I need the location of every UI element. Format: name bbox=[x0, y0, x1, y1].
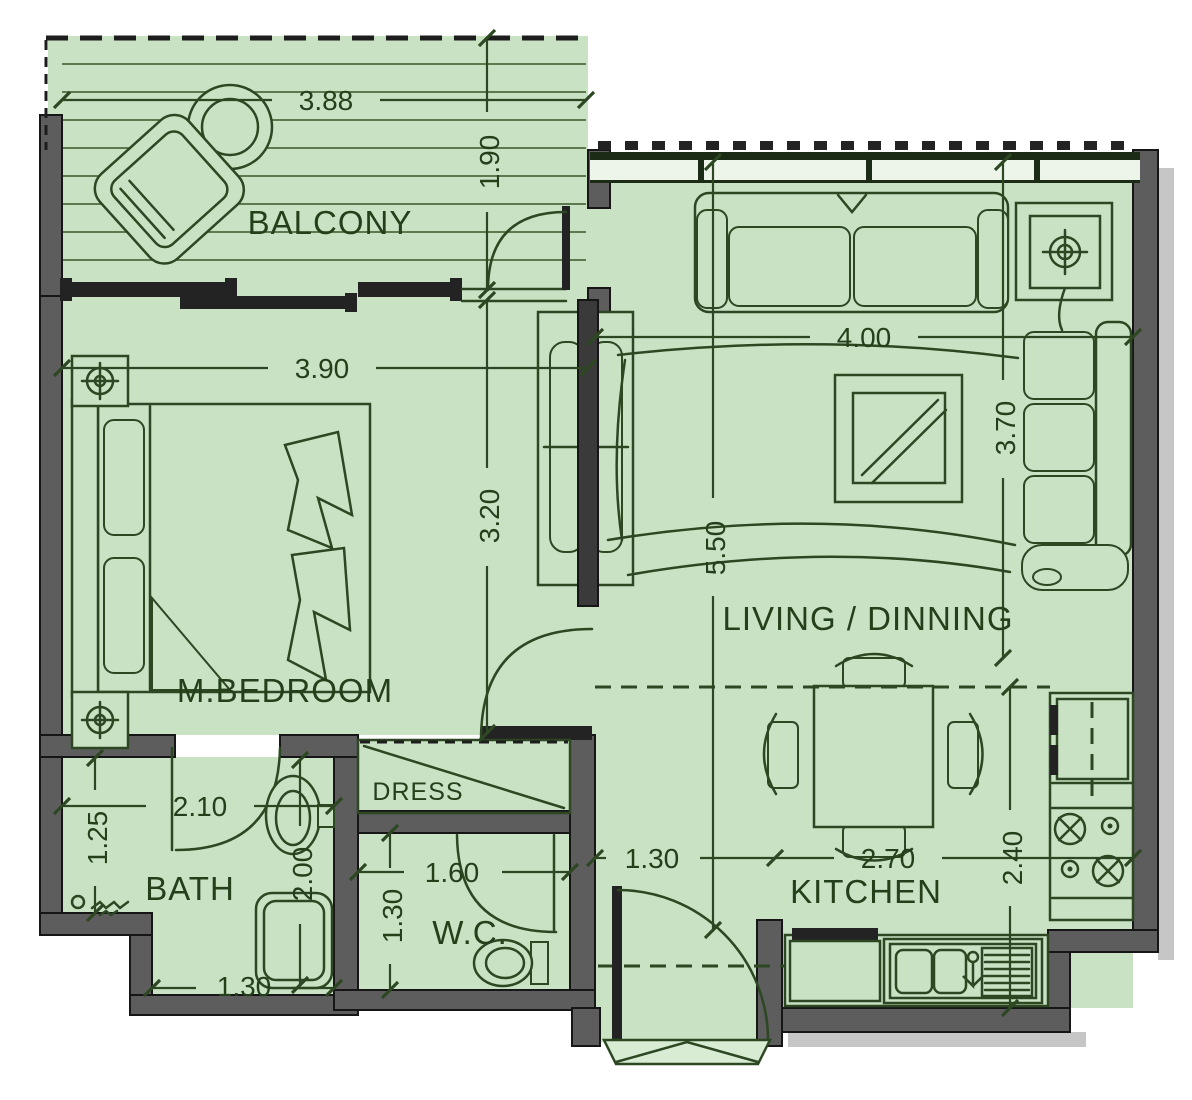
wall-wc-bottom bbox=[334, 990, 595, 1010]
wall-bath-wc-divider bbox=[334, 735, 358, 1008]
dim-label: 1.90 bbox=[474, 135, 505, 190]
room-label-dress: DRESS bbox=[372, 778, 463, 806]
floor-plan-page: 3.88 1.90 3.90 3.20 5.50 bbox=[0, 0, 1192, 1100]
dim-label: 1.25 bbox=[82, 811, 113, 866]
kitchen-counter-right bbox=[1050, 693, 1133, 920]
dining-chair bbox=[764, 714, 798, 794]
dim-label: 1.30 bbox=[217, 971, 272, 1002]
wall-shadow-bottom bbox=[788, 1032, 1086, 1047]
dining-chair bbox=[836, 654, 912, 688]
sofa-icon bbox=[695, 193, 1008, 312]
nightstand-lamp-icon bbox=[72, 692, 128, 748]
living-window-wall bbox=[590, 141, 1140, 183]
double-bed-icon bbox=[72, 400, 370, 696]
room-label-kitchen: KITCHEN bbox=[790, 873, 942, 910]
nightstand-lamp-icon bbox=[72, 356, 128, 406]
dim-label: 3.70 bbox=[990, 401, 1021, 456]
wardrobe-icon bbox=[538, 300, 633, 606]
corner-sofa-icon bbox=[1022, 322, 1131, 590]
counter-edge bbox=[792, 928, 878, 940]
seat-cushion bbox=[729, 227, 850, 306]
dim-label: 3.20 bbox=[474, 489, 505, 544]
window-glass-band bbox=[590, 160, 1140, 180]
wall-bath-bottom-left bbox=[40, 913, 152, 935]
cushion-detail bbox=[1033, 569, 1061, 585]
entry-floor bbox=[600, 1008, 757, 1042]
dim-label: 2.00 bbox=[287, 847, 318, 902]
room-label-living: LIVING / DINNING bbox=[722, 600, 1013, 637]
wall-right bbox=[1133, 150, 1158, 930]
wall-bath-step bbox=[130, 935, 152, 995]
door-leaf bbox=[562, 206, 570, 290]
door-leaf bbox=[481, 726, 592, 740]
dim-label: 2.70 bbox=[861, 843, 916, 874]
seat-cushion bbox=[1024, 476, 1094, 543]
room-label-bath: BATH bbox=[145, 870, 235, 907]
dim-label: 4.00 bbox=[837, 322, 892, 353]
cistern bbox=[531, 942, 548, 984]
pillow bbox=[104, 558, 144, 673]
floor-plan: 3.88 1.90 3.90 3.20 5.50 bbox=[0, 0, 1192, 1100]
door-leaf bbox=[612, 886, 622, 1042]
room-label-bedroom: M.BEDROOM bbox=[177, 672, 393, 709]
pillow bbox=[104, 420, 144, 535]
wall-entry-post-right bbox=[757, 920, 782, 1046]
entry-threshold bbox=[604, 1040, 770, 1064]
table-top bbox=[814, 686, 933, 827]
window-tick-dashes bbox=[598, 141, 1124, 150]
wall-left-main bbox=[40, 296, 62, 913]
wall-entry-post-left bbox=[572, 1008, 600, 1046]
window-outer-line bbox=[590, 152, 1140, 160]
dim-label: 2.10 bbox=[173, 791, 228, 822]
seat-cushion bbox=[1024, 404, 1094, 471]
kitchen-counter-bottom bbox=[785, 928, 1048, 1006]
dining-chair bbox=[948, 714, 983, 794]
dim-label: 3.90 bbox=[295, 353, 350, 384]
room-label-wc: W.C. bbox=[432, 914, 508, 951]
window-mullion bbox=[866, 152, 872, 183]
wall-corridor-left bbox=[570, 735, 595, 1008]
wall-shadow-right bbox=[1158, 168, 1174, 960]
wall-bath-top-right bbox=[280, 735, 358, 757]
seat-cushion bbox=[1024, 332, 1094, 399]
window-mullion bbox=[698, 152, 704, 183]
wall-bottom-right bbox=[775, 1008, 1070, 1032]
room-label-balcony: BALCONY bbox=[248, 204, 413, 241]
dim-label: 1.30 bbox=[625, 843, 680, 874]
wall-kitchen-step-v bbox=[1048, 952, 1070, 1008]
wall-left-balcony bbox=[40, 115, 62, 296]
window-mullion bbox=[1034, 152, 1040, 183]
dim-label: 1.30 bbox=[377, 889, 408, 944]
dim-label: 3.88 bbox=[299, 85, 354, 116]
window-inner-line bbox=[590, 180, 1140, 183]
dim-label: 1.60 bbox=[425, 857, 480, 888]
wall-kitchen-step-h bbox=[1048, 930, 1158, 952]
seat-cushion bbox=[854, 227, 976, 306]
headboard bbox=[72, 400, 98, 696]
coffee-table-icon bbox=[835, 375, 962, 502]
dim-label: 2.40 bbox=[997, 831, 1028, 886]
dim-label: 5.50 bbox=[700, 521, 731, 576]
sofa-back bbox=[1096, 322, 1131, 556]
